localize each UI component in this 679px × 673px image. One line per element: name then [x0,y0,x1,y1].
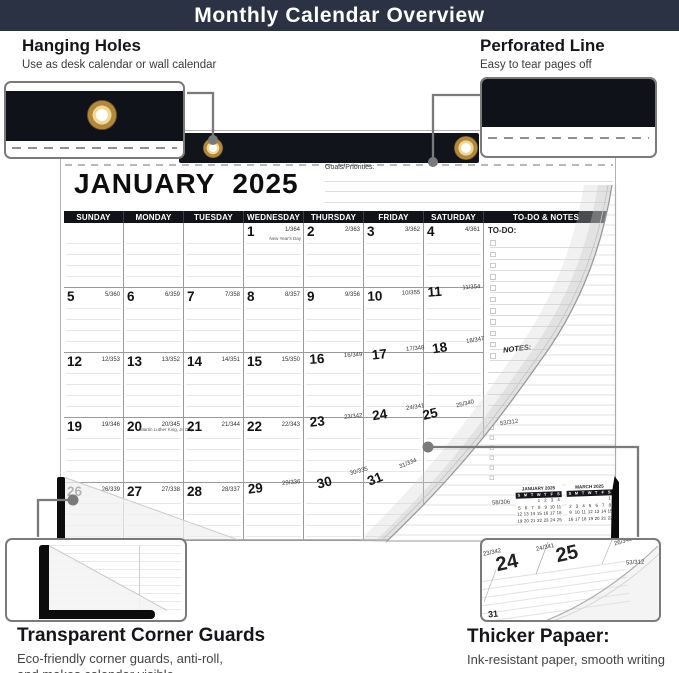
day-header: MONDAY [124,211,184,223]
julian-date: 8/357 [285,292,300,298]
julian-date: 9/356 [345,292,360,298]
day-cell-content: 2222/343 [244,418,303,482]
notes-line [488,373,604,384]
julian-date: 15/350 [282,357,300,363]
julian-date: 23/342 [344,413,363,421]
date-number: 9 [307,290,315,304]
julian-date: 22/343 [282,422,300,428]
todo-checkline [490,327,604,338]
day-cell: 2121/344 [184,418,244,483]
day-cell: 77/358 [184,288,244,353]
day-cell: 44/361 [424,223,484,288]
underpage-julian-date: 58/306 [492,500,511,507]
day-cell [184,223,244,288]
day-cell-content: 1919/346 [64,418,123,482]
julian-date: 16/349 [344,352,363,359]
day-cell-content: 1818/347 [428,332,496,404]
date-number: 10 [367,289,383,304]
callout-perforated-line: Perforated Line Easy to tear pages off [480,36,605,71]
julian-date: 21/344 [222,422,240,428]
mini-calendars: JANUARY 2025SMTWTFS123456789101112131415… [515,482,613,524]
callout-corner-guards: Transparent Corner Guards Eco-friendly c… [17,625,265,673]
day-cell: 1313/352 [124,353,184,418]
thumbnail-hanging-holes [4,81,185,159]
julian-date: 3/362 [405,227,420,233]
julian-date: 17/348 [406,345,425,353]
corner-guard-left [57,477,65,540]
date-number: 15 [247,355,262,369]
day-cell: 1515/350 [244,353,304,418]
day-cell-content: 1313/352 [124,353,183,417]
day-cell-content: 2929/336 [244,475,309,538]
year: 2025 [232,168,298,199]
todo-checkline [490,271,604,282]
day-cell: 2020/345Martin Luther King, Jr. Day [124,418,184,483]
goals-label: Goals/Priorities: [325,164,613,171]
day-cell: 1616/349 [304,353,364,418]
day-cell: 33/362 [364,223,424,288]
zoom-date: 25 [554,541,581,568]
julian-date: 18/347 [466,336,485,345]
todo-checkline [490,260,604,271]
julian-date: 12/353 [102,357,120,363]
callout-subtitle: Eco-friendly corner guards, anti-roll, a… [17,651,265,673]
callout-thicker-paper: Thicker Papaer: Ink-resistant paper, smo… [467,626,665,668]
notes-line [488,440,604,451]
product-infographic: Monthly Calendar Overview Hanging Holes … [0,0,679,673]
julian-date: 25/340 [456,399,475,409]
callout-title: Transparent Corner Guards [17,625,265,647]
date-number: 6 [127,290,135,304]
todo-label: TO-DO: [488,226,604,235]
ruled-line [325,171,613,182]
holiday-label: New Year's Day [269,236,301,241]
day-cell: 11/364New Year's Day [244,223,304,288]
callout-hanging-holes: Hanging Holes Use as desk calendar or wa… [22,36,216,71]
day-cell [124,223,184,288]
date-number: 11 [427,285,442,300]
julian-date: 7/358 [225,292,240,298]
day-cell: 88/357 [244,288,304,353]
day-cell-content: 44/361 [424,223,483,287]
todo-checkline [490,293,604,304]
day-cell: 2222/343 [244,418,304,483]
ruled-line [325,192,613,203]
day-cell-content: 55/360 [64,288,123,352]
day-cell [424,483,484,541]
date-number: 25 [421,406,439,423]
date-number: 12 [67,355,82,369]
grommet-right-icon [454,136,478,160]
date-number: 3 [367,225,375,239]
day-header: WEDNESDAY [244,211,304,223]
banner-title: Monthly Calendar Overview [194,4,484,28]
julian-date: 14/351 [222,357,240,363]
date-number: 14 [187,355,202,369]
julian-date: 4/361 [465,227,480,233]
date-number: 8 [247,290,255,304]
day-cell-content: 1616/349 [306,348,368,415]
day-cell-content: 99/356 [304,288,363,352]
notes-line [488,429,604,440]
day-cell-content: 2121/344 [184,418,243,482]
thumbnail-thicker-paper: 24 23/342 25 24/341 26/340 53/312 31 [480,538,661,622]
day-header: SUNDAY [64,211,124,223]
date-number: 4 [427,225,435,239]
grommet-zoom-icon [87,100,117,130]
date-number: 30 [315,474,333,491]
notes-line [488,361,604,372]
notes-line [488,395,604,406]
day-cell: 1919/346 [64,418,124,483]
callout-title: Thicker Papaer: [467,626,665,648]
date-number: 13 [127,355,142,369]
day-cell-content [184,223,243,287]
day-cell: 55/360 [64,288,124,353]
day-cell-content [64,223,123,287]
callout-title: Hanging Holes [22,36,216,56]
banner: Monthly Calendar Overview [0,0,679,31]
day-cell-content [424,483,483,540]
month-name: JANUARY [74,168,215,199]
callout-subtitle: Easy to tear pages off [480,59,605,71]
date-number: 22 [247,420,262,434]
thumbnail-perforated-line [480,77,657,158]
day-cell: 22/363 [304,223,364,288]
callout-line: Eco-friendly corner guards, anti-roll, [17,651,265,667]
date-number: 16 [309,352,325,367]
perforation-dashes [488,137,649,139]
day-cell: 2525/340 [424,418,484,483]
date-number: 7 [187,290,195,304]
callout-title: Perforated Line [480,36,605,56]
perforation-dashes [12,147,177,149]
julian-date: 19/346 [102,422,120,428]
callout-line: and makes calendar visible [17,667,265,673]
date-number: 27 [127,485,142,499]
day-cell: 99/356 [304,288,364,353]
calendar-page: JANUARY2025 Goals/Priorities: SUNDAYMOND… [60,130,616,540]
julian-date: 13/352 [162,357,180,363]
date-number: 18 [431,340,448,356]
date-number: 24 [371,407,388,423]
date-number: 31 [366,470,385,489]
todo-checkline [490,316,604,327]
mini-date-cell: 25 [556,517,563,524]
julian-date: 10/355 [402,290,421,297]
binding-strip-zoom [482,79,655,127]
day-cell: 1212/353 [64,353,124,418]
todo-checkline [490,305,604,316]
day-header: THURSDAY [304,211,364,223]
notes-line [488,452,604,463]
julian-date: 1/364 [285,227,300,233]
notes-line [488,384,604,395]
day-cell-content: 77/358 [184,288,243,352]
callout-subtitle: Ink-resistant paper, smooth writing [467,652,665,668]
day-cell-content: 11/364New Year's Day [244,223,303,287]
julian-date: 27/338 [162,487,180,493]
day-cell [64,223,124,288]
mini-calendar: JANUARY 2025SMTWTFS123456789101112131415… [515,484,562,525]
day-cell-content: 2020/345Martin Luther King, Jr. Day [124,418,183,482]
julian-date: 11/354 [462,284,480,291]
day-cell-content: 1414/351 [184,353,243,417]
day-cell: 2929/336 [244,483,304,541]
date-number: 17 [371,347,387,362]
day-cell-content [124,223,183,287]
day-header: SATURDAY [424,211,484,223]
date-number: 2 [307,225,315,239]
date-number: 29 [247,481,263,496]
todo-checkline [490,237,604,248]
day-header: TO-DO & NOTES [484,211,609,223]
date-number: 23 [309,414,325,429]
date-number: 28 [187,485,202,499]
mini-calendar: MARCH 2025SMTWTFS12345678910111213141516… [566,482,613,523]
goals-block: Goals/Priorities: [325,164,613,203]
day-cell: 1414/351 [184,353,244,418]
todo-checkline [490,248,604,259]
day-cell-content: 1212/353 [64,353,123,417]
day-header: TUESDAY [184,211,244,223]
day-cell: 3131/334 [364,483,424,541]
julian-date: 5/360 [105,292,120,298]
day-cell: 3030/335 [304,483,364,541]
day-cell: 66/359 [124,288,184,353]
black-guard-horizontal [39,610,155,619]
grommet-left-icon [203,138,223,158]
ruled-line [325,182,613,193]
notes-line [488,406,604,417]
julian-date: 2/363 [345,227,360,233]
black-guard-vertical [39,545,49,619]
day-cell-content: 1515/350 [244,353,303,417]
day-cell-content: 33/362 [364,223,423,287]
julian-date: 29/336 [282,479,301,487]
binding-strip [179,133,479,163]
day-cell-content: 88/357 [244,288,303,352]
month-title: JANUARY2025 [74,168,299,200]
julian-date: 31/334 [398,458,417,470]
day-cell-content: 66/359 [124,288,183,352]
zoom-date: 31 [488,609,499,620]
julian-date: 6/359 [165,292,180,298]
callout-subtitle: Use as desk calendar or wall calendar [22,59,216,71]
date-number: 1 [247,225,255,239]
date-number: 21 [187,420,202,434]
thumbnail-corner-guard [5,538,187,622]
date-number: 19 [67,420,82,434]
day-header: FRIDAY [364,211,424,223]
julian-date: 28/337 [222,487,240,493]
date-number: 5 [67,290,75,304]
zoom-julian: 53/312 [626,559,645,566]
day-cell-content: 22/363 [304,223,363,287]
notes-line [488,463,604,474]
todo-checkline [490,282,604,293]
